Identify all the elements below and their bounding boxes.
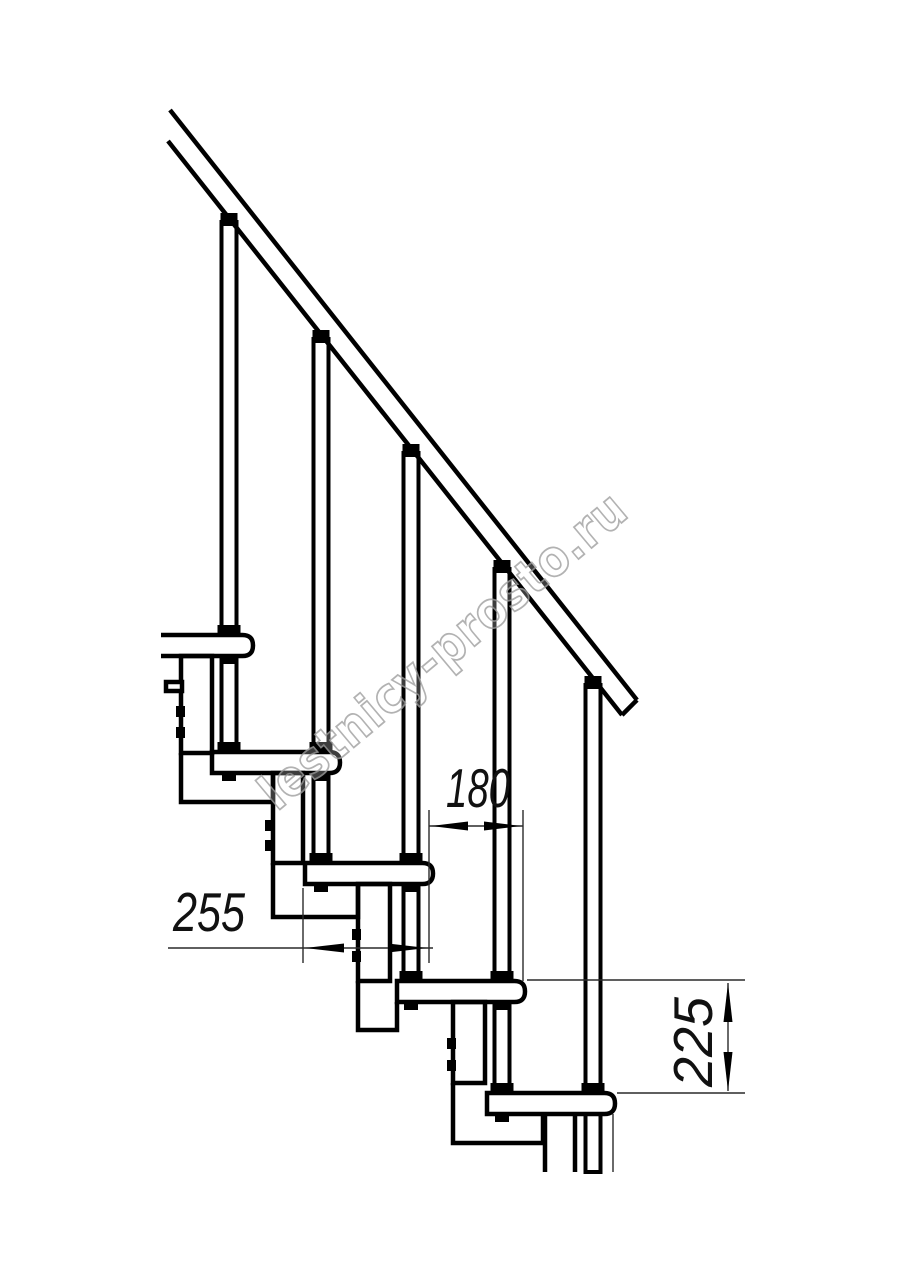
foot-collar xyxy=(218,742,241,752)
foot-collar xyxy=(491,1083,514,1093)
dimension-255: 255 xyxy=(168,810,433,963)
module-bolt xyxy=(176,706,185,717)
bolt-nut xyxy=(495,1002,509,1010)
dim-arrow-left xyxy=(305,944,344,953)
step-5 xyxy=(487,1093,615,1114)
module-bolt xyxy=(265,820,274,831)
module-tab xyxy=(166,682,182,691)
foot-collar xyxy=(400,971,423,981)
stair-drawing: 255 180 225 lestnicy-prosto.ru xyxy=(0,0,914,1280)
bolt-nut xyxy=(222,773,236,781)
bolt-nut xyxy=(495,1114,509,1122)
step-4 xyxy=(397,981,525,1002)
module-bolt xyxy=(447,1060,456,1071)
bolt-nut xyxy=(404,1002,418,1010)
stair-drawing-page: 255 180 225 lestnicy-prosto.ru xyxy=(0,0,914,1280)
step-3 xyxy=(305,863,433,884)
module-column-1 xyxy=(181,656,212,753)
handrail-end-cap xyxy=(622,700,637,715)
watermark-text: lestnicy-prosto.ru xyxy=(247,480,638,821)
module-bolt xyxy=(176,727,185,738)
bolt-nut xyxy=(314,884,328,892)
dimension-label-step-going: 180 xyxy=(446,757,510,819)
dimension-label-step-depth: 255 xyxy=(172,881,245,943)
dim-arrow-left xyxy=(431,822,468,831)
module-column-3 xyxy=(358,884,390,981)
bolt-nut xyxy=(222,656,236,664)
module-clamp-3 xyxy=(358,981,397,1030)
step-collar xyxy=(218,625,241,635)
module-bolt xyxy=(265,840,274,851)
step-collar xyxy=(582,1083,605,1093)
dim-arrow-down xyxy=(724,1052,733,1091)
module-bolt xyxy=(352,951,361,962)
step-1 xyxy=(161,635,253,656)
step-collar xyxy=(400,853,423,863)
dim-arrow-up xyxy=(724,983,733,1022)
step-collar xyxy=(491,971,514,981)
module-bolt xyxy=(352,929,361,940)
bolt-nut xyxy=(404,884,418,892)
baluster-rod-1 xyxy=(222,222,237,747)
module-column-4 xyxy=(453,1002,485,1083)
module-bolt xyxy=(447,1038,456,1049)
foot-collar xyxy=(310,853,333,863)
dimension-225: 225 xyxy=(527,980,745,1093)
dimension-label-step-rise: 225 xyxy=(662,997,724,1088)
